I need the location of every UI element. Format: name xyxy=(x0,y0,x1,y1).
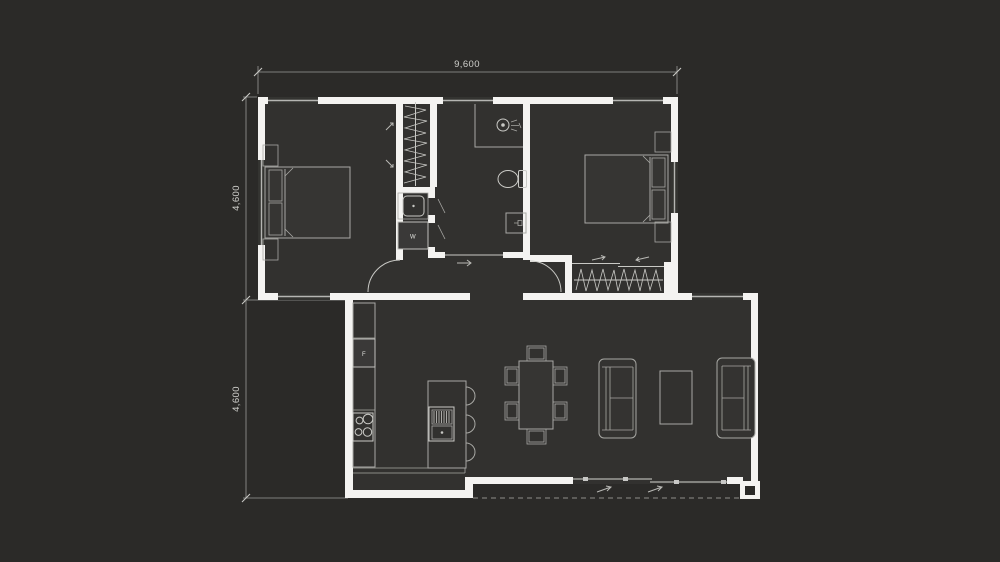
door-handle xyxy=(623,477,628,481)
dimension-left-lower: 4,600 xyxy=(231,300,348,502)
sink-drain xyxy=(441,431,444,434)
door-handle xyxy=(721,480,726,484)
door-handle xyxy=(674,480,679,484)
fridge-label: F xyxy=(362,352,366,358)
door-handle xyxy=(583,477,588,481)
floor-plan: 9,600 4,600 4,600 xyxy=(0,0,1000,562)
corner-column xyxy=(740,481,760,499)
shower-rose-center xyxy=(501,123,505,127)
dimension-line xyxy=(243,300,348,498)
sofa-left xyxy=(599,359,636,438)
washer-label: W xyxy=(410,235,416,241)
sliding-direction-arrows xyxy=(597,486,662,492)
tub-drain xyxy=(412,205,414,207)
dimension-line xyxy=(258,66,677,94)
dimension-height-lower-label: 4,600 xyxy=(231,386,242,412)
dining-table xyxy=(519,361,553,429)
dimension-top: 9,600 xyxy=(254,59,681,94)
floor-plan-canvas: 9,600 4,600 4,600 xyxy=(0,0,1000,562)
double-bed xyxy=(585,155,668,223)
dimension-height-upper-label: 4,600 xyxy=(231,185,242,211)
dimension-width-label: 9,600 xyxy=(454,59,480,70)
double-bed xyxy=(265,167,350,238)
